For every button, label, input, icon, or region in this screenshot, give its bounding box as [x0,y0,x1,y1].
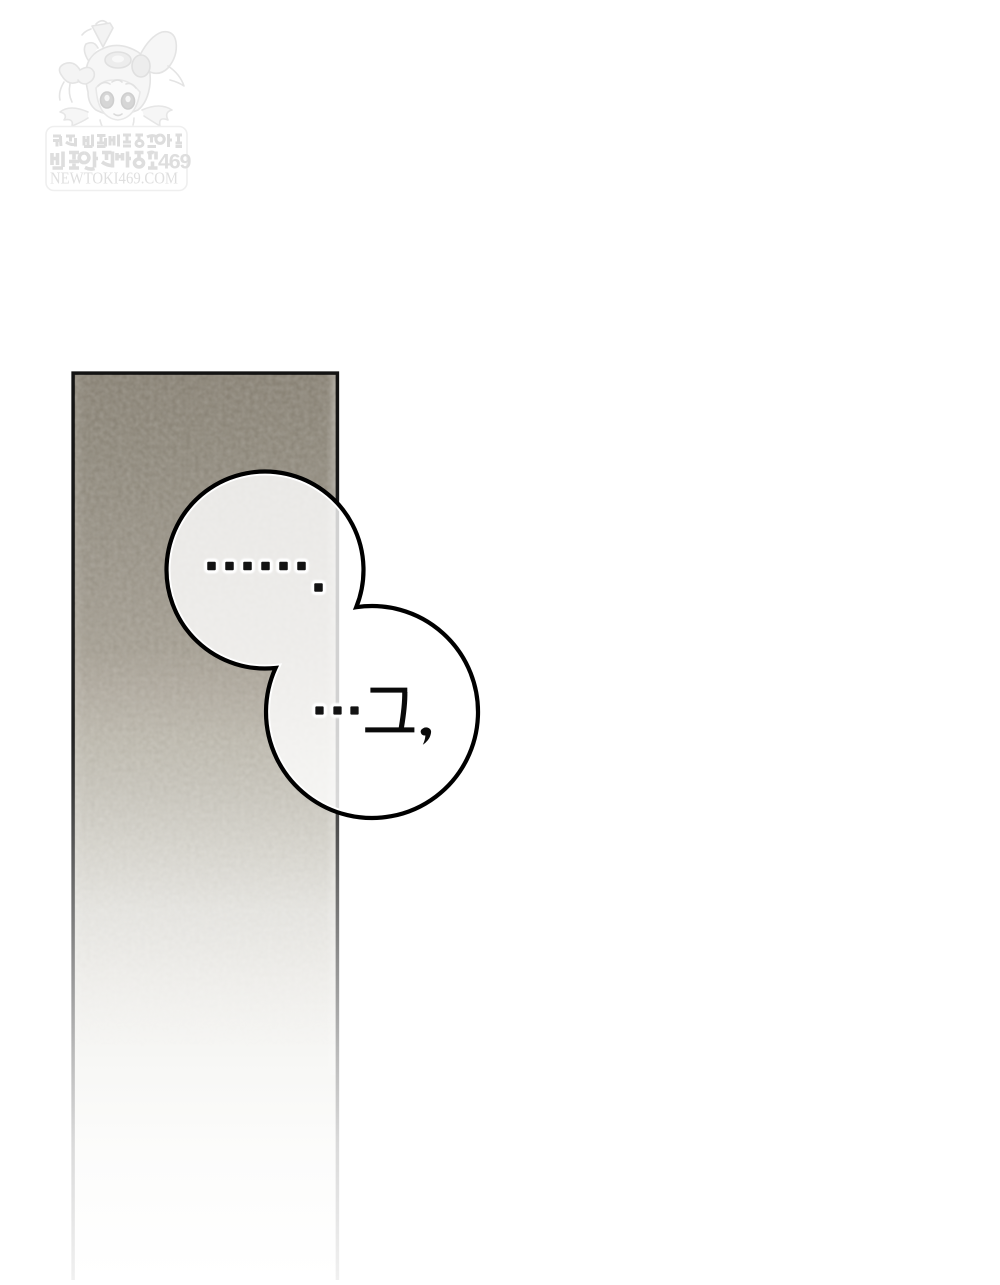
svg-text:NEWTOKI469.COM: NEWTOKI469.COM [50,169,178,188]
